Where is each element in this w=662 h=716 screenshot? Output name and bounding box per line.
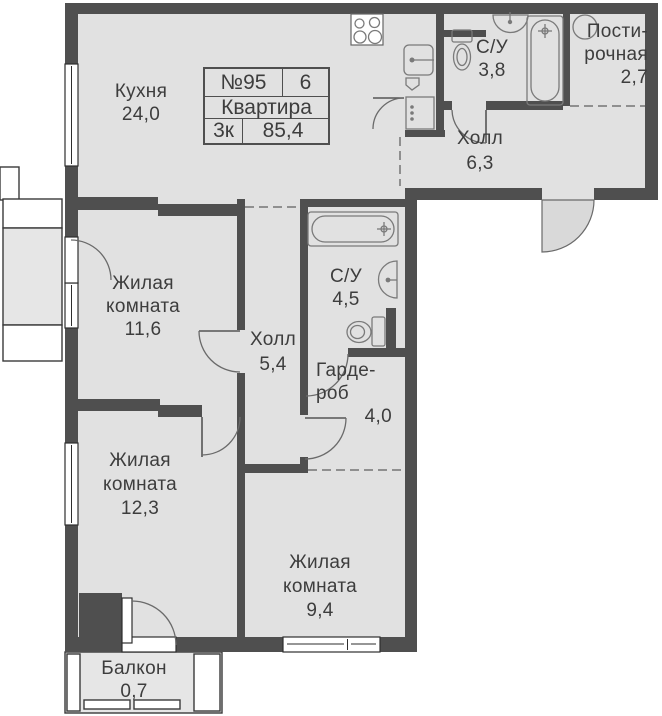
label-laundry: Пости-рочная2,7 <box>564 20 648 89</box>
label-wardrobe: Гарде-роб 4,0 <box>316 359 396 428</box>
floor-number: 6 <box>283 69 328 96</box>
total-area: 85,4 <box>243 119 328 143</box>
entrance-door <box>542 200 594 252</box>
living3-window <box>283 637 380 652</box>
label-kitchen: Кухня24,0 <box>76 80 206 126</box>
apartment-kind: Квартира <box>205 97 328 118</box>
floor-plan: Кухня24,0 №95 6 Квартира 3к 85,4 С/У3,8 … <box>0 0 662 716</box>
label-bathroom-top: С/У3,8 <box>454 36 530 82</box>
stove-icon <box>351 14 383 45</box>
rooms-count: 3к <box>205 119 243 143</box>
label-living3: Жилаякомната9,4 <box>254 551 386 623</box>
shaft <box>79 593 122 637</box>
left-loggia <box>0 167 62 361</box>
label-hall-mid: Холл5,4 <box>240 327 306 377</box>
label-hall-top: Холл6,3 <box>442 126 518 176</box>
label-balcony: Балкон0,7 <box>78 657 190 703</box>
living1-window <box>65 283 78 328</box>
label-bathroom-mid: С/У4,5 <box>310 265 382 311</box>
apartment-info-table: №95 6 Квартира 3к 85,4 <box>203 67 330 145</box>
label-living2: Жилаякомната12,3 <box>74 449 206 521</box>
label-living1: Жилаякомната11,6 <box>78 272 208 341</box>
apartment-number: №95 <box>205 69 283 96</box>
